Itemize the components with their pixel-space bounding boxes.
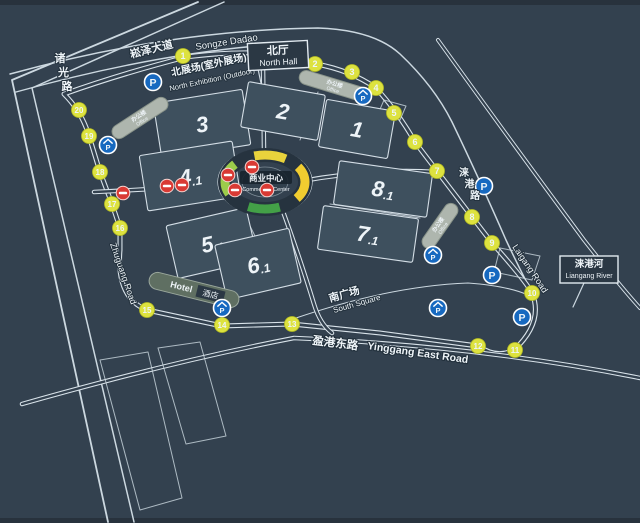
gate-marker-16: 16: [113, 221, 128, 236]
necc-site-map: 34.1218.17.15.16.1 商业中心 Commercial Cente…: [0, 0, 640, 523]
liangang-river-label-zh: 涞港河: [575, 258, 604, 270]
top-border-strip: [0, 0, 640, 5]
no-entry-icon: [260, 183, 274, 197]
north-hall-callout: 北厅 North Hall: [247, 40, 308, 70]
gate-11-number: 11: [511, 346, 520, 355]
covered-parking-icon: P: [425, 247, 442, 264]
gate-marker-13: 13: [285, 317, 300, 332]
gate-marker-1: 1: [176, 49, 191, 64]
map-canvas: 34.1218.17.15.16.1 商业中心 Commercial Cente…: [0, 0, 640, 523]
covered-parking-icon: P: [355, 88, 372, 105]
gate-marker-6: 6: [408, 135, 423, 150]
gate-6-number: 6: [412, 137, 417, 147]
gate-marker-7: 7: [430, 164, 445, 179]
gate-marker-14: 14: [215, 318, 230, 333]
gate-marker-5: 5: [387, 106, 402, 121]
parking-letter: P: [435, 306, 440, 315]
parking-letter: P: [518, 312, 525, 324]
no-entry-bar: [224, 174, 232, 177]
no-entry-bar: [163, 185, 171, 188]
gate-10-number: 10: [528, 289, 537, 298]
covered-parking-icon: P: [214, 300, 231, 317]
liangang-river-callout: 涞港河 Liangang River: [560, 256, 618, 283]
no-entry-bar: [119, 192, 127, 195]
no-entry-bar: [231, 189, 239, 192]
gate-13-number: 13: [288, 320, 297, 329]
gate-12-number: 12: [474, 342, 483, 351]
no-entry-bar: [263, 189, 271, 192]
laigang-road-label-zh-char: 路: [470, 189, 481, 202]
gate-marker-19: 19: [82, 129, 97, 144]
no-entry-icon: [228, 183, 242, 197]
gate-20-number: 20: [75, 106, 84, 115]
gate-3-number: 3: [349, 67, 354, 77]
gate-marker-2: 2: [308, 57, 323, 72]
laigang-road-label-zh-char: 港: [465, 178, 476, 191]
gate-14-number: 14: [218, 321, 227, 330]
gate-9-number: 9: [489, 238, 494, 248]
no-entry-icon: [245, 160, 259, 174]
parking-icon: P: [514, 309, 531, 326]
gate-7-number: 7: [434, 166, 439, 176]
gate-5-number: 5: [391, 108, 396, 118]
no-entry-bar: [248, 166, 256, 169]
north-hall-label-zh: 北厅: [266, 42, 289, 57]
parking-letter: P: [430, 253, 435, 262]
laigang-road-label-zh-char: 涞: [459, 166, 469, 179]
zhuguang-road-label-zh-char: 诸: [55, 51, 66, 65]
gate-marker-9: 9: [485, 236, 500, 251]
covered-parking-icon: P: [430, 300, 447, 317]
gate-marker-12: 12: [471, 339, 486, 354]
gate-marker-18: 18: [93, 165, 108, 180]
parking-letter: P: [105, 143, 110, 152]
gate-marker-17: 17: [105, 197, 120, 212]
gate-17-number: 17: [108, 200, 117, 209]
no-entry-bar: [178, 184, 186, 187]
parking-icon: P: [484, 267, 501, 284]
gate-marker-3: 3: [345, 65, 360, 80]
parking-letter: P: [480, 181, 487, 193]
north-hall-label-en: North Hall: [259, 56, 297, 68]
zhuguang-road-label-zh-char: 路: [62, 79, 74, 93]
zhuguang-road-label-zh-char: 光: [57, 65, 69, 79]
liangang-river-label-en: Liangang River: [565, 273, 613, 280]
gate-1-number: 1: [180, 51, 185, 61]
covered-parking-icon: P: [100, 137, 117, 154]
gate-marker-15: 15: [140, 303, 155, 318]
no-entry-icon: [160, 179, 174, 193]
gate-16-number: 16: [116, 224, 125, 233]
no-entry-icon: [221, 168, 235, 182]
parking-icon: P: [145, 74, 162, 91]
gate-4-number: 4: [373, 83, 378, 93]
parking-letter: P: [219, 306, 224, 315]
parking-letter: P: [360, 94, 365, 103]
gate-19-number: 19: [85, 132, 94, 141]
gate-18-number: 18: [96, 168, 105, 177]
gate-15-number: 15: [143, 306, 152, 315]
commercial-center-label-zh: 商业中心: [249, 173, 284, 183]
gate-marker-11: 11: [508, 343, 523, 358]
no-entry-icon: [116, 186, 130, 200]
parking-letter: P: [488, 270, 495, 282]
gate-marker-8: 8: [465, 210, 480, 225]
gate-2-number: 2: [312, 59, 317, 69]
no-entry-icon: [175, 178, 189, 192]
gate-8-number: 8: [469, 212, 474, 222]
gate-marker-20: 20: [72, 103, 87, 118]
parking-letter: P: [149, 77, 156, 89]
bottom-border-strip: [0, 518, 640, 523]
